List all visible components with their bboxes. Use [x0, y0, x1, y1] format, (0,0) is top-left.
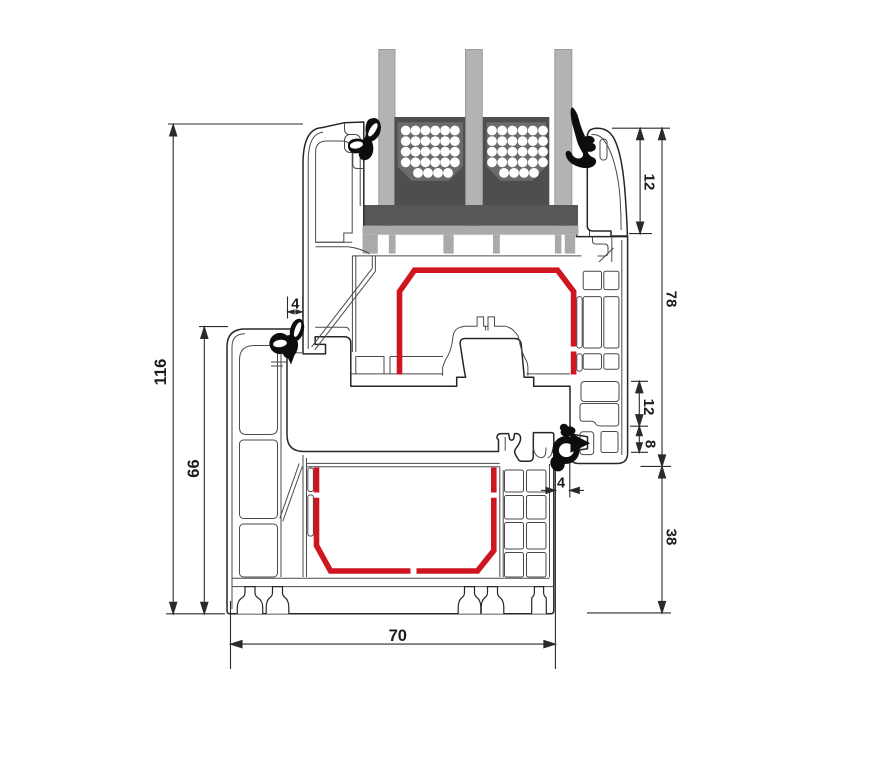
svg-text:116: 116	[152, 359, 170, 386]
svg-text:78: 78	[663, 291, 680, 308]
svg-text:4: 4	[557, 476, 565, 492]
svg-text:4: 4	[291, 297, 299, 313]
svg-text:8: 8	[642, 440, 659, 448]
svg-text:70: 70	[389, 627, 407, 645]
svg-text:12: 12	[640, 399, 657, 416]
svg-text:66: 66	[185, 459, 203, 477]
svg-text:12: 12	[641, 174, 658, 191]
svg-text:38: 38	[663, 529, 680, 546]
